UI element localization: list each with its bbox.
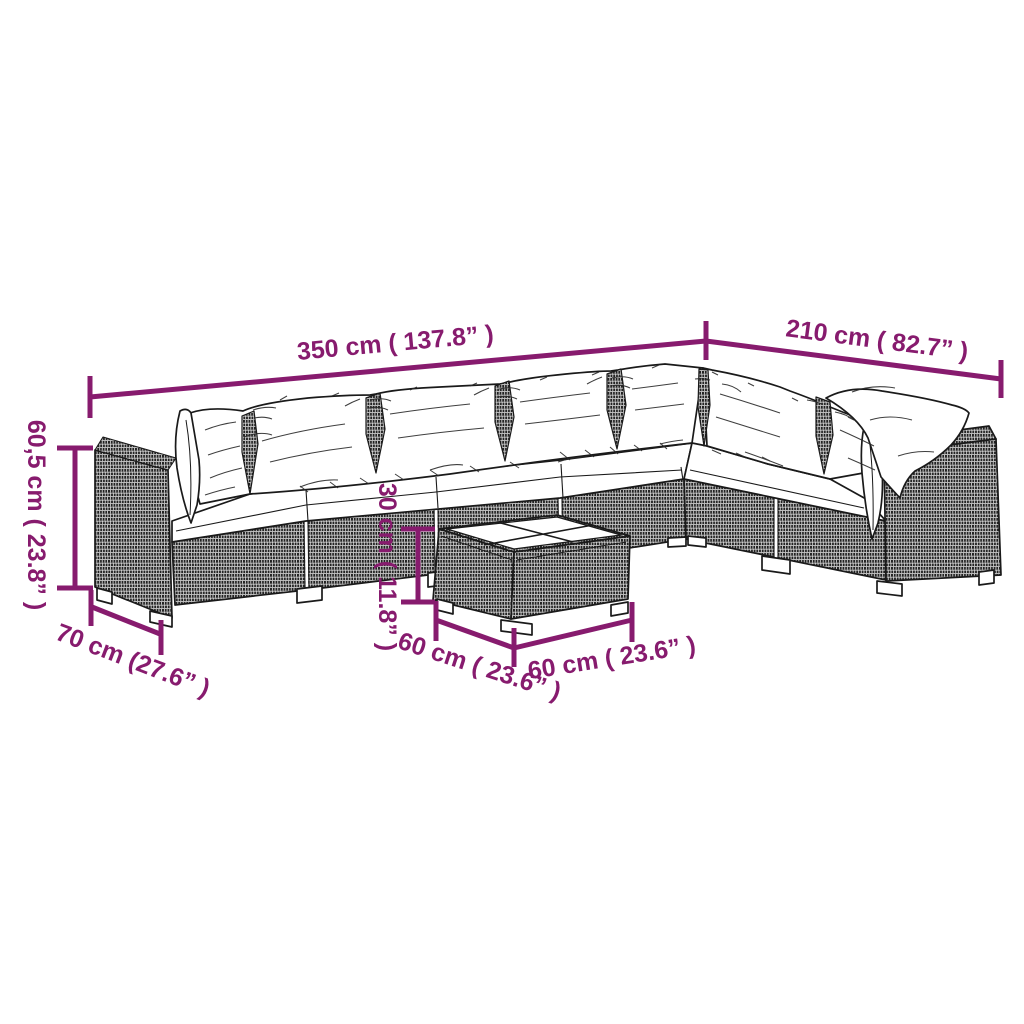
- svg-text:60,5 cm ( 23.8” ): 60,5 cm ( 23.8” ): [22, 420, 50, 610]
- svg-text:30 cm ( 11.8” ): 30 cm ( 11.8” ): [373, 483, 401, 651]
